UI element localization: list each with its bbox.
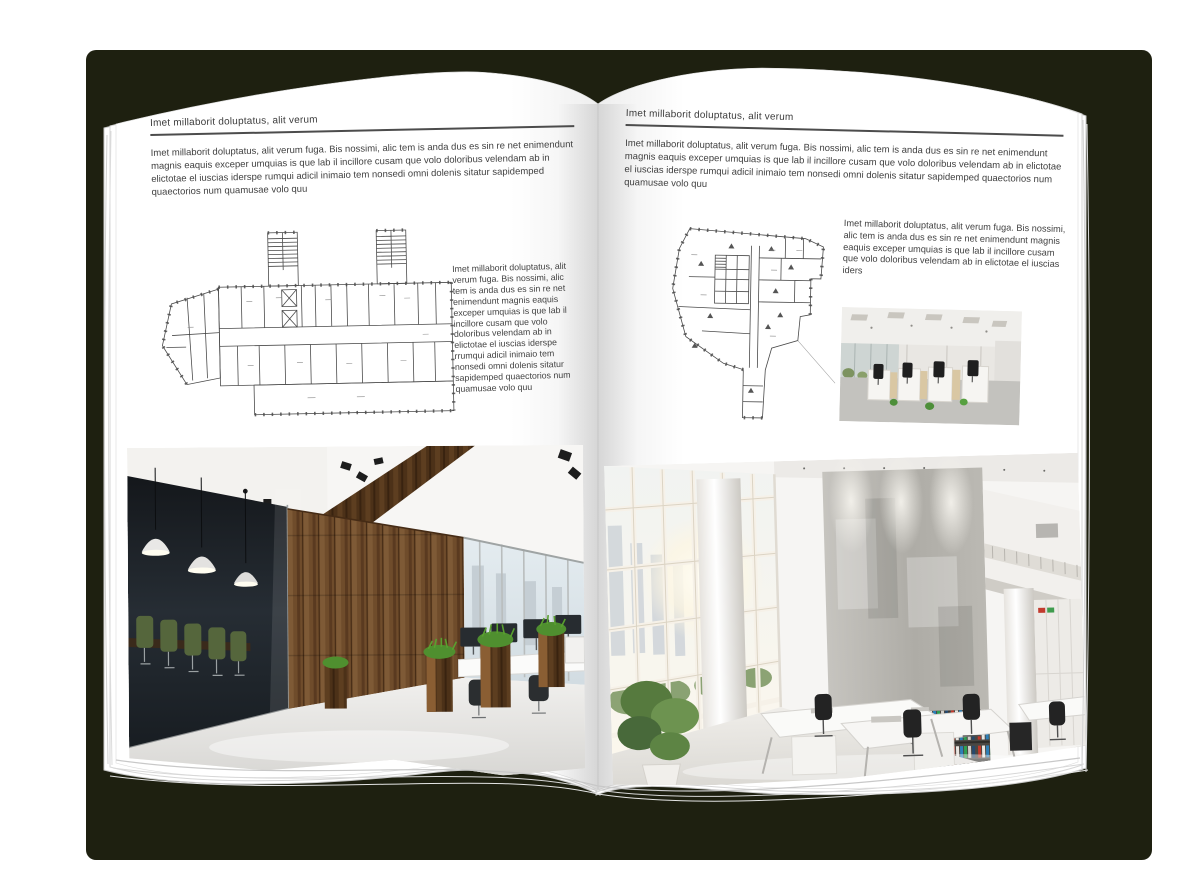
concrete-wall — [822, 453, 989, 720]
floor-plan-left — [156, 222, 456, 424]
intro-paragraph: Imet millaborit doluptatus, alit verum f… — [151, 138, 576, 199]
glass-meeting-room — [127, 467, 303, 748]
ceiling — [841, 307, 1022, 349]
floor-plan-right — [648, 214, 842, 427]
left-page-top: Imet millaborit doluptatus, alit verum I… — [150, 109, 576, 199]
printer — [1009, 722, 1032, 751]
side-text: Imet millaborit doluptatus, alit verum f… — [842, 218, 1068, 283]
photo-cubicle-office — [839, 307, 1022, 425]
photo-dark-wood-office — [127, 445, 585, 778]
magazine-mockup: Imet millaborit doluptatus, alit verum I… — [0, 0, 1200, 891]
right-page-top: Imet millaborit doluptatus, alit verum I… — [624, 108, 1064, 200]
photo-atrium-office — [604, 453, 1087, 788]
side-text: Imet millaborit doluptatus, alit verum f… — [452, 261, 576, 395]
intro-paragraph: Imet millaborit doluptatus, alit verum f… — [624, 137, 1063, 200]
white-cabinets — [1034, 599, 1086, 748]
